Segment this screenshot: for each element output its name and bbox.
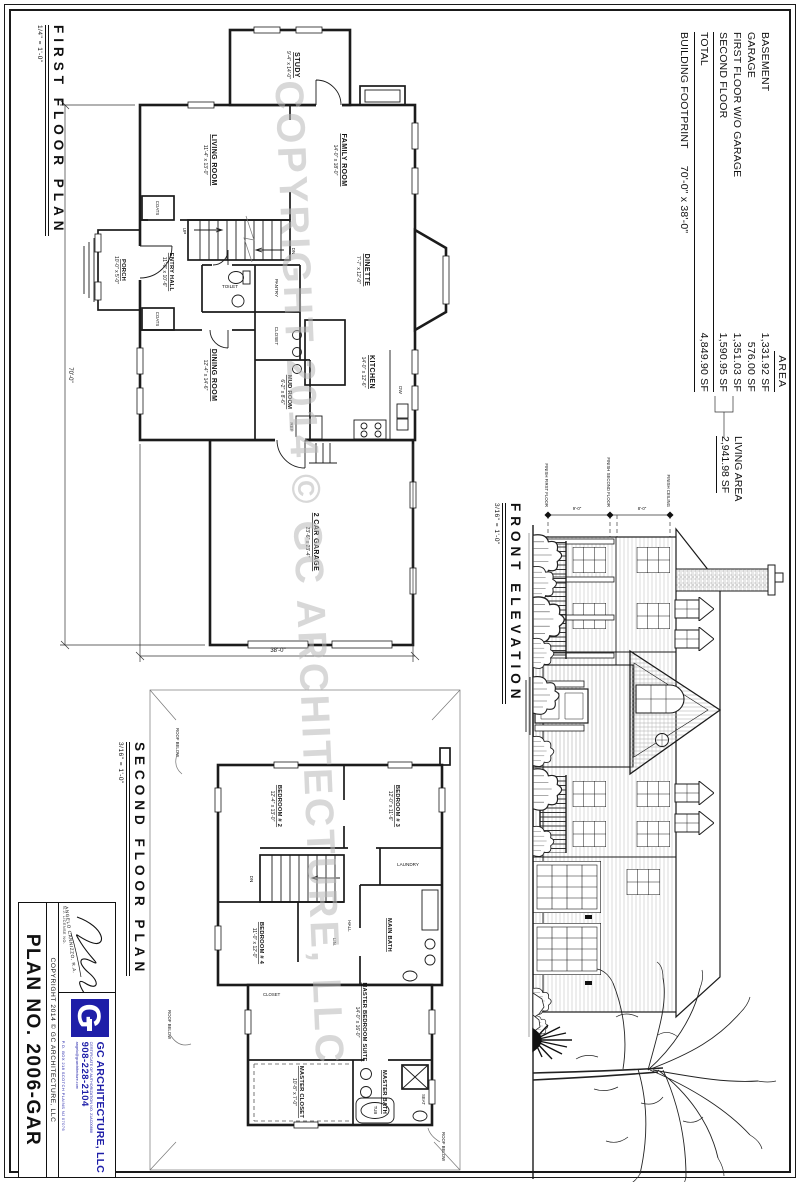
title-block: ANGELO CANNIZZO, R.A. N.J. LICENSE NO. G… — [18, 902, 116, 1178]
elevation-level-dims: 9'-0" 8'-0" FINISH FIRST FLOOR FINISH SE… — [544, 457, 674, 537]
room-label-garage: 2 CAR GARAGE — [312, 513, 319, 571]
table-row: BASEMENT 1,331.92 SF — [758, 32, 772, 392]
room-dims-bed3: 12'-0" x 11'-6" — [387, 791, 393, 822]
front-elevation-drawing: 9'-0" 8'-0" FINISH FIRST FLOOR FINISH SE… — [508, 437, 798, 1182]
gc-logo-icon: G — [71, 999, 109, 1037]
stairs-dn-label: DN — [291, 248, 296, 255]
row-value: 576.00 SF — [744, 288, 758, 392]
room-dims-dinette: 7'-7" x 12'-0" — [355, 256, 361, 284]
row-label: GARAGE — [744, 32, 758, 288]
pantry-label: PANTRY — [274, 279, 279, 297]
row-value: 1,351.03 SF — [730, 288, 744, 392]
copyright-line: COPYRIGHT 2014 © GC ARCHITECTURE, LLC — [46, 903, 58, 1177]
room-label-master-closet: MASTER CLOSET — [298, 1066, 304, 1118]
coats-label: COATS — [155, 312, 160, 327]
room-label-dining: DINING ROOM — [210, 349, 217, 402]
room-label-dinette: DINETTE — [363, 254, 370, 287]
svg-text:FINISH CEILING: FINISH CEILING — [666, 475, 671, 508]
row-label: SECOND FLOOR — [716, 32, 730, 288]
footprint-value: 70'-0" x 38'-0" — [678, 166, 690, 234]
room-dims-living: 11'-4" x 13'-0" — [202, 145, 208, 176]
tub-label: TUB — [373, 1106, 378, 1115]
hall-label: HALL — [347, 920, 352, 932]
room-label-master-bath: MASTER BATH — [381, 1070, 387, 1114]
first-floor-scale: 1/4" = 1'-0" — [36, 25, 43, 236]
room-label-bed4: BEDROOM # 4 — [258, 922, 264, 965]
bay-window-walls — [415, 230, 446, 330]
room-label-bed3: BEDROOM # 3 — [394, 785, 400, 828]
entry-steps — [526, 677, 530, 735]
living-area-bracket — [704, 394, 740, 442]
row-value: 1,590.95 SF — [716, 288, 730, 392]
main-bath-label: MAIN BATH — [386, 918, 392, 952]
closet-label: CLOSET — [274, 327, 279, 346]
room-label-mud: MUD ROOM — [286, 375, 292, 409]
firm-cell: G GC ARCHITECTURE, LLC CERTIFICATE OF AU… — [59, 993, 115, 1177]
second-floor-plan-drawing: DN — [128, 680, 468, 1180]
stairs-up-label: UP — [182, 228, 187, 234]
footprint-label: BUILDING FOOTPRINT — [678, 32, 690, 149]
room-dims-kitchen: 14'-0" x 12'-6" — [360, 357, 366, 388]
living-area-label: LIVING AREA — [731, 436, 744, 566]
porch-walls — [98, 230, 140, 310]
seat-label: SEAT — [421, 1094, 426, 1105]
area-table-header: AREA — [774, 351, 788, 392]
svg-text:FINISH SECOND FLOOR: FINISH SECOND FLOOR — [606, 457, 611, 507]
svg-text:ROOF BELOW: ROOF BELOW — [441, 1132, 446, 1162]
master-suite-walls — [248, 985, 432, 1125]
room-dims-porch: 10'-0" x 5'-0" — [113, 256, 119, 284]
second-floor-scale: 3/16" = 1'-0" — [117, 742, 124, 976]
garage-elevation — [533, 861, 601, 985]
second-floor-title: SECOND FLOOR PLAN 3/16" = 1'-0" — [117, 742, 148, 976]
front-elevation-title: FRONT ELEVATION 3/16" = 1'-0" — [493, 503, 524, 704]
lantern — [585, 915, 592, 919]
front-elevation-scale: 3/16" = 1'-0" — [493, 503, 500, 704]
firm-address: P.O. BOX 218 SCOTCH PLAINS NJ 07076 — [61, 1041, 66, 1131]
lin-label: LIN. — [332, 938, 337, 946]
svg-text:ROOF BELOW: ROOF BELOW — [167, 1010, 172, 1040]
room-label-living: LIVING ROOM — [210, 134, 217, 185]
firebox — [365, 90, 400, 102]
coats-label: COATS — [155, 201, 160, 216]
total-value: 4,849.90 SF — [697, 163, 711, 392]
first-floor-plan-drawing: UP DN COATS COATS — [40, 20, 460, 660]
room-label-porch: PORCH — [120, 259, 126, 281]
room-label-family: FAMILY ROOM — [340, 133, 347, 186]
chimney — [676, 569, 768, 591]
ref-label: REF — [289, 422, 294, 431]
total-label: TOTAL — [697, 32, 711, 163]
toilet-label: TOILET — [222, 284, 238, 289]
room-dims-bed4: 11'-0" x 12'-0" — [251, 928, 257, 959]
room-dims-study: 9'-4" x 14'-0" — [285, 51, 291, 79]
svg-text:9'-0": 9'-0" — [573, 506, 582, 511]
first-floor-title-text: FIRST FLOOR PLAN — [45, 25, 66, 236]
living-area-callout: LIVING AREA 2,941.98 SF — [716, 436, 744, 566]
blueprint-sheet: COPYRIGHT 2014 © GC ARCHITECTURE, LLC AR… — [0, 0, 800, 1182]
dw-label: DW — [398, 386, 403, 394]
area-table: AREA BASEMENT 1,331.92 SF GARAGE 576.00 … — [678, 32, 788, 462]
table-row: FIRST FLOOR W/O GARAGE 1,351.03 SF — [730, 32, 744, 392]
room-dims-bed2: 12'-4" x 13'-0" — [269, 791, 275, 822]
room-dims-dining: 12'-4" x 14'-6" — [202, 360, 208, 391]
room-label-entry: ENTRY HALL — [168, 253, 174, 292]
room-label-study: STUDY — [293, 52, 300, 78]
room-dims-mud: 6'-2" x 8'-6" — [279, 379, 285, 404]
room-label-bed2: BEDROOM # 2 — [276, 785, 282, 827]
second-floor-title-text: SECOND FLOOR PLAN — [126, 742, 147, 976]
room-dims-master-closet: 10'-8" x 7'-0" — [291, 1078, 297, 1106]
sidelight — [535, 725, 584, 731]
row-value: 1,331.92 SF — [758, 288, 772, 392]
lantern — [585, 981, 592, 985]
room-dims-garage: 23'-6" x 23'-4" — [304, 527, 310, 558]
room-label-kitchen: KITCHEN — [368, 355, 375, 389]
table-row: SECOND FLOOR 1,590.95 SF — [716, 32, 730, 392]
laundry-label: LAUNDRY — [397, 862, 419, 867]
stairs-dn-label: DN — [249, 876, 254, 883]
building-footprint: BUILDING FOOTPRINT 70'-0" x 38'-0" — [678, 32, 690, 462]
room-label-master: MASTER BEDROOM SUITE — [361, 982, 367, 1061]
chimney — [440, 748, 450, 765]
room-dims-family: 14'-0" x 18'-0" — [332, 145, 338, 176]
firm-phone: 908-228-2104 — [79, 1042, 89, 1173]
table-rule — [713, 32, 714, 392]
dim-width-label: 70'-0" — [67, 367, 73, 382]
signature-cell: ANGELO CANNIZZO, R.A. N.J. LICENSE NO. — [59, 903, 115, 993]
firm-name: GC ARCHITECTURE, LLC — [94, 1042, 105, 1173]
rotated-sheet: COPYRIGHT 2014 © GC ARCHITECTURE, LLC AR… — [0, 0, 800, 1182]
total-row: TOTAL 4,849.90 SF — [697, 32, 711, 392]
table-rule — [694, 32, 695, 392]
row-label: BASEMENT — [758, 32, 772, 288]
firm-email: angelo@gcarchitecture.com — [75, 1042, 79, 1173]
front-elevation-title-text: FRONT ELEVATION — [502, 503, 523, 704]
table-row: GARAGE 576.00 SF — [744, 32, 758, 392]
row-label: FIRST FLOOR W/O GARAGE — [730, 32, 744, 288]
first-floor-title: FIRST FLOOR PLAN 1/4" = 1'-0" — [36, 25, 67, 236]
room-dims-master: 14'-0" x 16'-0" — [354, 1007, 360, 1038]
house-walls — [140, 105, 415, 440]
dim-depth-label: 38'-0" — [270, 648, 285, 654]
signature-icon — [59, 903, 115, 993]
svg-text:8'-0": 8'-0" — [638, 506, 647, 511]
porch-steps — [84, 238, 94, 302]
plan-number: PLAN NO. 2006-GAR — [19, 903, 46, 1177]
closet-label: CLOSET — [263, 992, 281, 997]
living-area-value: 2,941.98 SF — [716, 436, 731, 493]
svg-text:FINISH FIRST FLOOR: FINISH FIRST FLOOR — [544, 463, 549, 507]
room-dims-entry: 11'-0" x 10'-6" — [161, 257, 167, 288]
